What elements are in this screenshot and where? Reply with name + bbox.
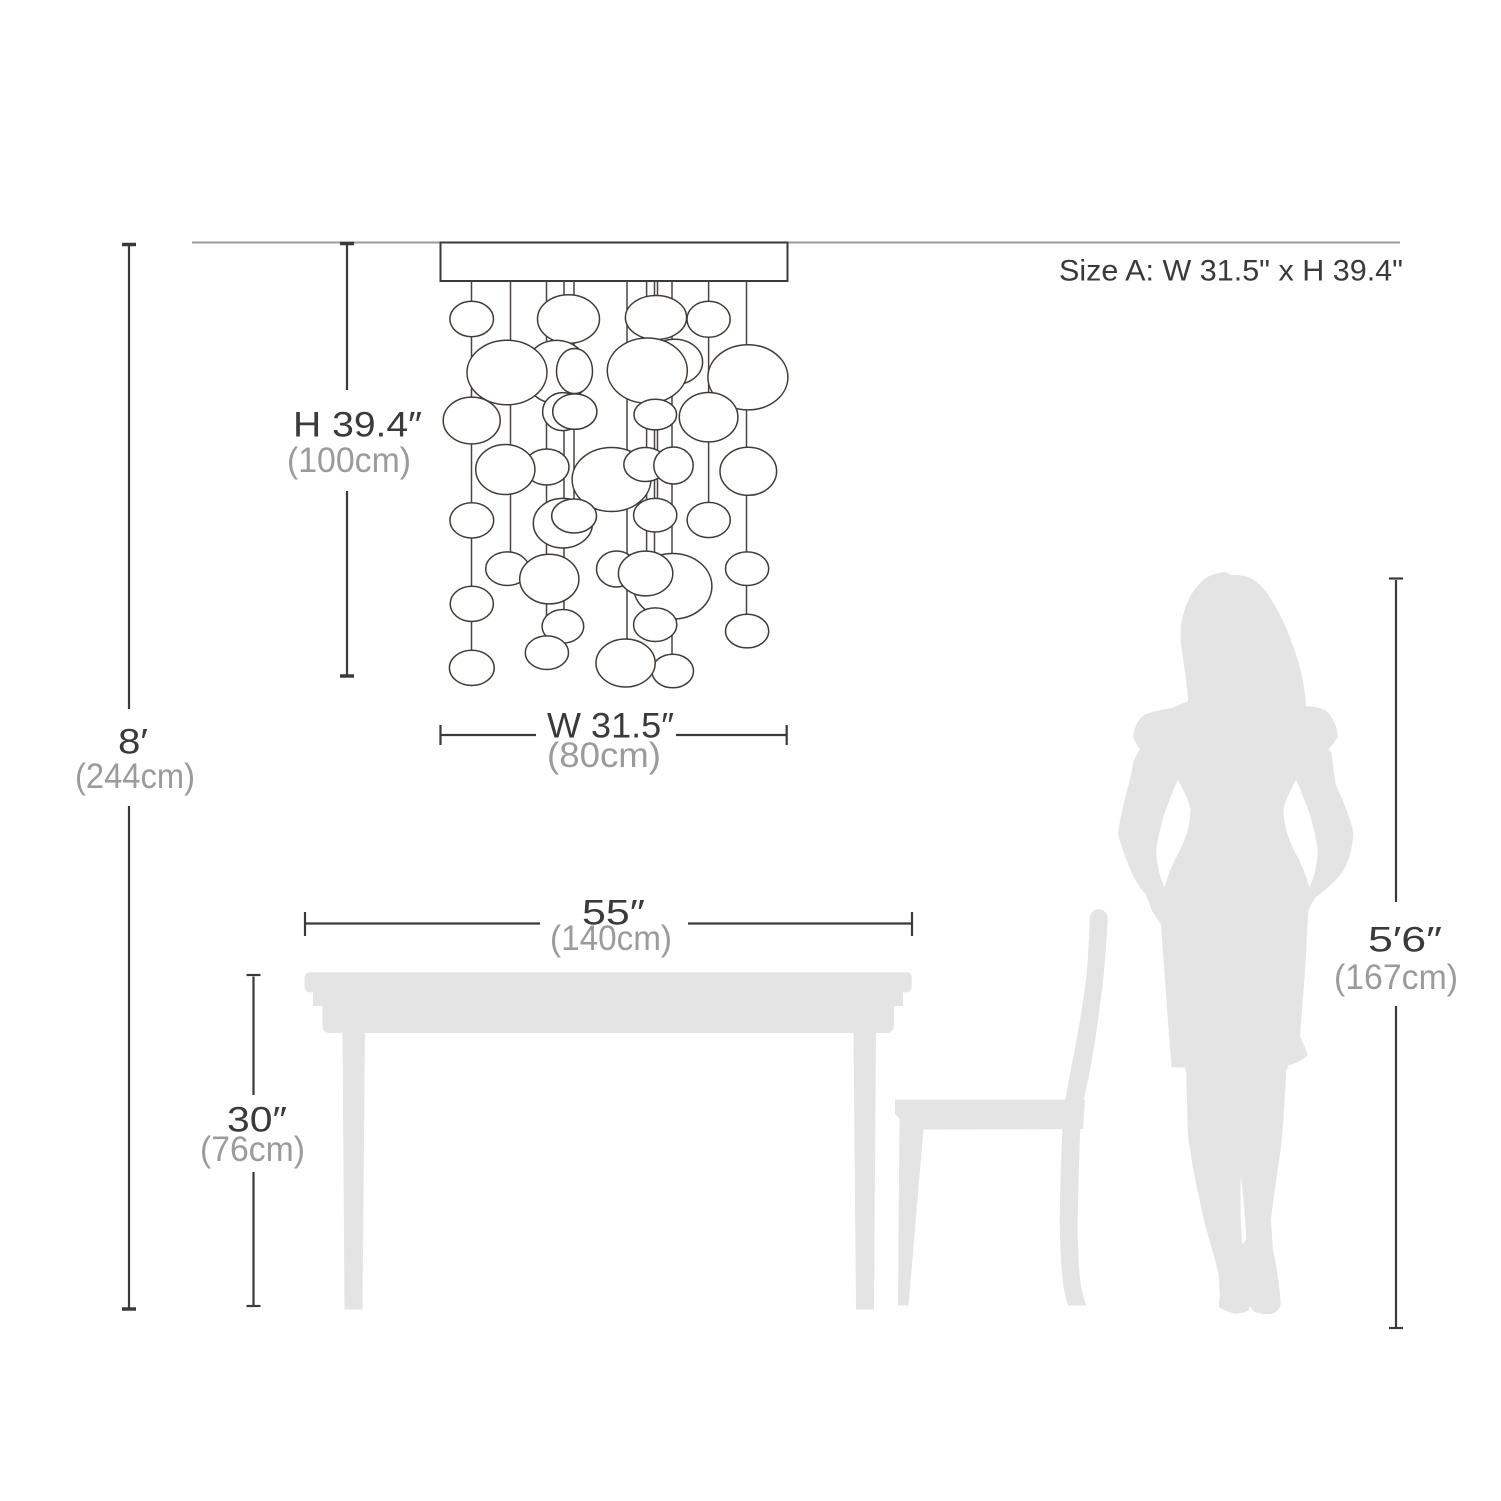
- svg-text:(76cm): (76cm): [200, 1130, 305, 1169]
- svg-text:H 39.4″: H 39.4″: [293, 406, 422, 445]
- svg-text:(244cm): (244cm): [75, 757, 195, 796]
- svg-text:Size A: W 31.5" x H 39.4": Size A: W 31.5" x H 39.4": [1059, 255, 1403, 288]
- svg-text:(167cm): (167cm): [1334, 958, 1458, 997]
- svg-text:(80cm): (80cm): [547, 736, 661, 775]
- svg-text:(140cm): (140cm): [550, 919, 672, 958]
- svg-text:5′6″: 5′6″: [1368, 921, 1442, 960]
- svg-text:8′: 8′: [118, 723, 148, 762]
- svg-text:(100cm): (100cm): [287, 441, 411, 480]
